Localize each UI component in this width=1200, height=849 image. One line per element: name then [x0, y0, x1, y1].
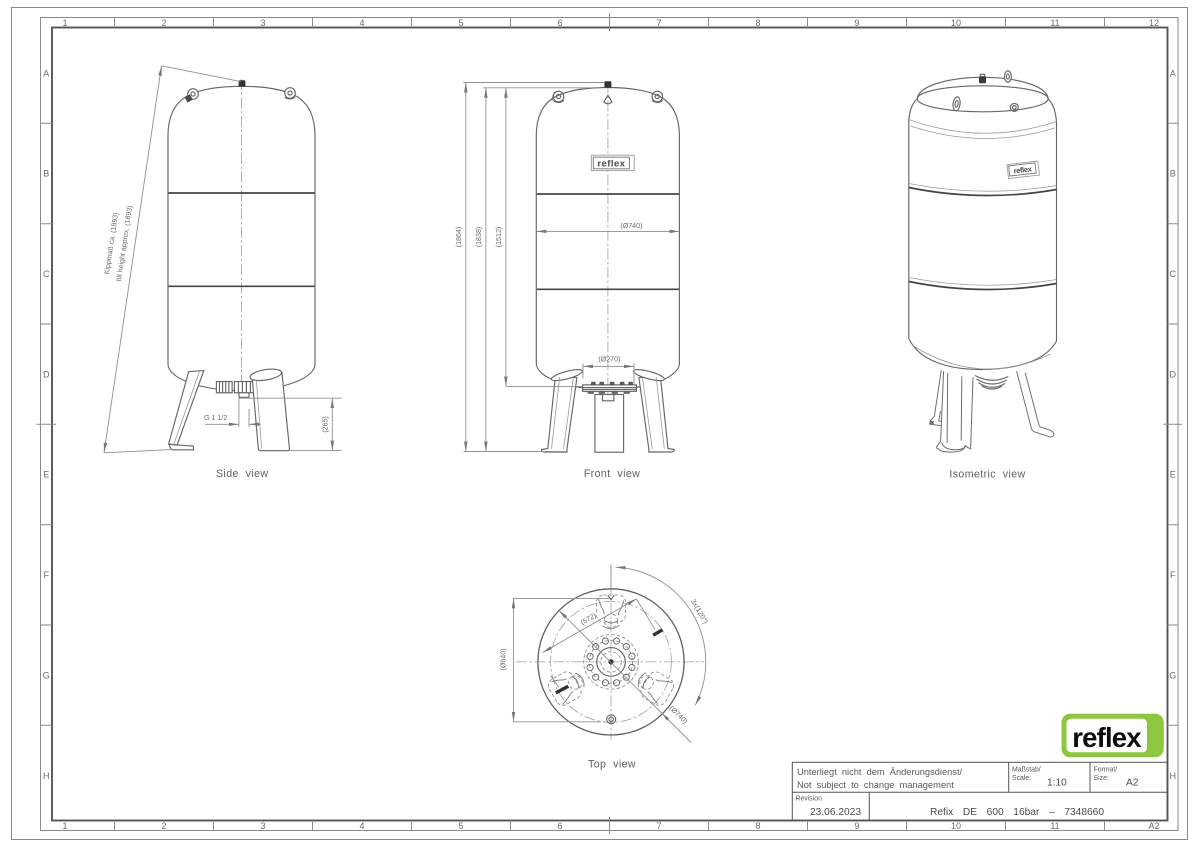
- svg-text:D: D: [1169, 369, 1176, 379]
- svg-text:9: 9: [854, 18, 859, 28]
- svg-text:reflex: reflex: [597, 159, 625, 170]
- svg-text:11: 11: [1050, 821, 1059, 831]
- svg-text:Refix DE 600 16bar – 7348: Refix DE 600 16bar – 7348660: [930, 807, 1104, 818]
- svg-text:G 1 1/2: G 1 1/2: [204, 414, 227, 422]
- svg-text:F: F: [1170, 570, 1176, 580]
- svg-text:7: 7: [656, 18, 661, 28]
- svg-text:F: F: [44, 570, 50, 580]
- svg-text:(Ø640): (Ø640): [500, 648, 508, 670]
- svg-text:(572): (572): [579, 611, 597, 626]
- svg-text:Maßstab/: Maßstab/: [1012, 767, 1041, 774]
- svg-text:Not subject to change manageme: Not subject to change management: [797, 780, 954, 790]
- svg-text:1: 1: [62, 821, 67, 831]
- svg-text:1: 1: [62, 18, 67, 28]
- svg-text:H: H: [43, 771, 50, 781]
- svg-text:2: 2: [161, 821, 166, 831]
- svg-text:9: 9: [854, 821, 859, 831]
- svg-text:C: C: [43, 269, 50, 279]
- svg-text:4: 4: [359, 821, 364, 831]
- svg-text:B: B: [43, 169, 49, 179]
- svg-text:Side view: Side view: [216, 468, 268, 480]
- svg-text:G: G: [1169, 670, 1176, 680]
- svg-text:A2: A2: [1148, 821, 1159, 831]
- svg-text:10: 10: [951, 821, 961, 831]
- svg-text:A: A: [1170, 68, 1176, 78]
- svg-text:Isometric view: Isometric view: [949, 469, 1025, 481]
- svg-text:11: 11: [1050, 18, 1059, 28]
- svg-text:1:10: 1:10: [1047, 778, 1067, 789]
- svg-text:E: E: [1170, 470, 1176, 480]
- svg-text:Size:: Size:: [1094, 775, 1109, 782]
- svg-text:3x(120°): 3x(120°): [689, 598, 709, 625]
- svg-text:C: C: [1169, 269, 1176, 279]
- svg-text:Format/: Format/: [1094, 767, 1118, 774]
- svg-text:G: G: [43, 670, 50, 680]
- svg-text:10: 10: [951, 18, 961, 28]
- svg-text:Top view: Top view: [588, 759, 636, 771]
- svg-text:(265): (265): [321, 416, 329, 433]
- svg-text:(1838): (1838): [475, 227, 483, 248]
- svg-text:8: 8: [755, 18, 760, 28]
- svg-text:Revision: Revision: [796, 796, 823, 803]
- svg-text:B: B: [1170, 169, 1176, 179]
- svg-text:(Ø270): (Ø270): [598, 356, 620, 364]
- svg-text:Scale:: Scale:: [1012, 775, 1031, 782]
- svg-text:12: 12: [1149, 18, 1159, 28]
- svg-text:(1864): (1864): [455, 227, 463, 248]
- svg-text:23.06.2023: 23.06.2023: [810, 807, 861, 818]
- svg-text:2: 2: [161, 18, 166, 28]
- svg-text:Front view: Front view: [584, 468, 640, 480]
- svg-text:Unterliegt nicht dem Änderungs: Unterliegt nicht dem Änderungsdienst/: [797, 767, 963, 777]
- svg-text:4: 4: [359, 18, 364, 28]
- svg-text:3: 3: [260, 18, 265, 28]
- svg-text:E: E: [43, 470, 49, 480]
- svg-text:D: D: [43, 369, 50, 379]
- svg-text:reflex: reflex: [1072, 722, 1142, 753]
- svg-text:6: 6: [557, 18, 562, 28]
- svg-text:A2: A2: [1126, 778, 1139, 789]
- svg-text:6: 6: [557, 821, 562, 831]
- svg-text:H: H: [1169, 771, 1176, 781]
- svg-text:(1512): (1512): [495, 227, 503, 248]
- svg-text:7: 7: [656, 821, 661, 831]
- svg-text:8: 8: [755, 821, 760, 831]
- svg-text:3: 3: [260, 821, 265, 831]
- svg-text:5: 5: [458, 821, 463, 831]
- svg-text:(Ø740): (Ø740): [620, 222, 642, 230]
- svg-text:A: A: [43, 68, 49, 78]
- svg-text:5: 5: [458, 18, 463, 28]
